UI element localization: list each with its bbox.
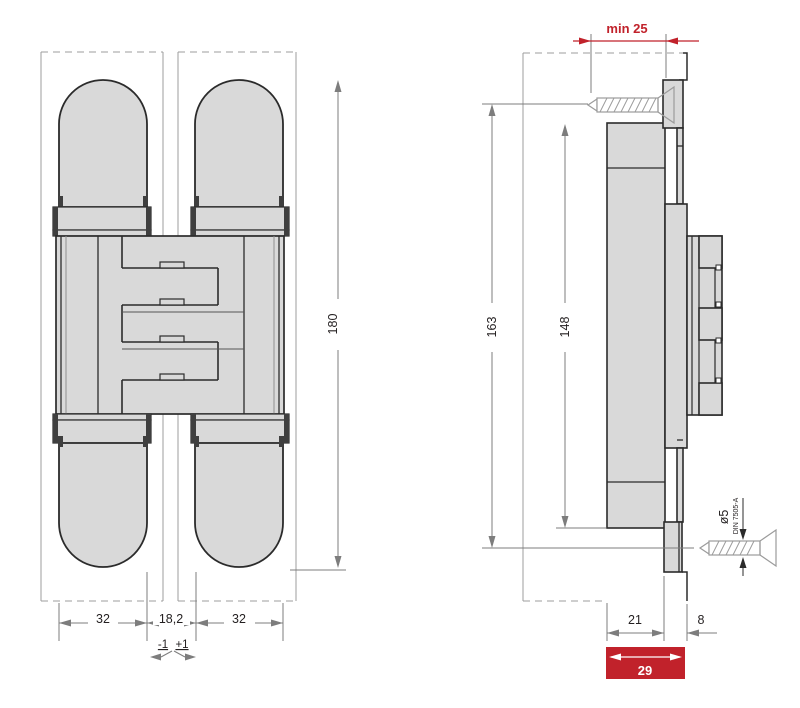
dimension-widths: 32 18,2 32 xyxy=(59,572,283,641)
dimension-180: 180 xyxy=(290,80,346,570)
hinge-leaf-right-bottom xyxy=(195,443,283,567)
leaf-collar-bands-top xyxy=(53,207,289,236)
dim-32-right-label: 32 xyxy=(232,612,246,626)
hinge-leaf-left-bottom xyxy=(59,443,147,567)
hinge-barrel xyxy=(687,236,722,415)
dim-148-label: 148 xyxy=(558,317,572,338)
dim-min-25-label: min 25 xyxy=(606,21,647,36)
dim-8-label: 8 xyxy=(698,613,705,627)
dim-21-label: 21 xyxy=(628,613,642,627)
screw-standard-label: DIN 7505-A xyxy=(733,497,740,534)
dim-32-left-label: 32 xyxy=(96,612,110,626)
mounting-screw-bottom xyxy=(700,530,776,566)
dimension-29-highlight: 29 xyxy=(606,647,685,679)
leaf-collar-bands-bottom xyxy=(53,414,289,443)
hinge-body-side xyxy=(607,80,687,572)
dim-18-2-label: 18,2 xyxy=(159,612,183,626)
tolerance-annotation: -1 +1 xyxy=(150,639,196,661)
hinge-leaf-right-top xyxy=(195,80,283,207)
dim-180-label: 180 xyxy=(326,314,340,335)
screw-spec-annotation: ø5 DIN 7505-A xyxy=(717,497,747,576)
side-view: min 25 163 148 xyxy=(482,21,776,679)
drawing-canvas: 180 32 18,2 32 xyxy=(0,0,800,708)
hinge-mechanism xyxy=(56,236,284,414)
tolerance-plus-label: +1 xyxy=(175,639,188,651)
dimension-21-8: 21 8 xyxy=(607,576,717,641)
dimension-148: 148 xyxy=(556,124,606,528)
barrel-knuckle-tabs xyxy=(699,236,722,415)
dim-163-label: 163 xyxy=(485,317,499,338)
tolerance-minus-label: -1 xyxy=(158,639,168,651)
hinge-leaf-left-top xyxy=(59,80,147,207)
screw-diameter-label: ø5 xyxy=(717,510,731,525)
hinge-technical-drawing: 180 32 18,2 32 xyxy=(0,0,800,708)
dim-29-label: 29 xyxy=(638,663,652,678)
front-view: 180 32 18,2 32 xyxy=(41,52,346,661)
mounting-screw-top xyxy=(588,87,674,123)
